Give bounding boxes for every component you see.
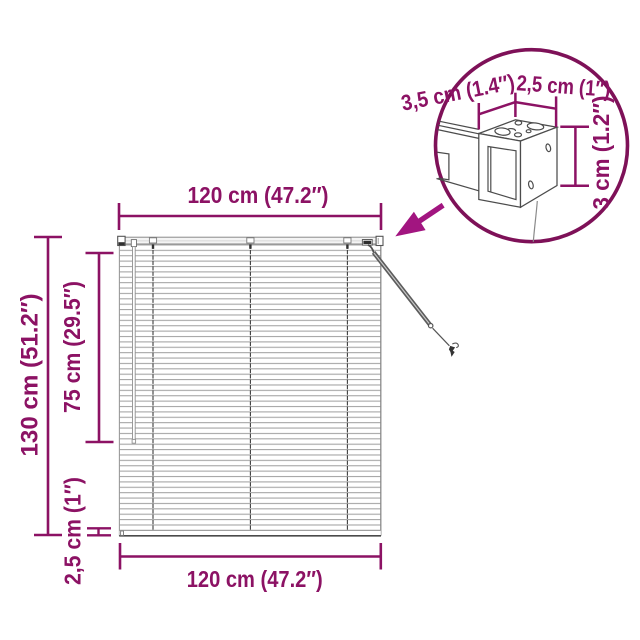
svg-text:130 cm (51.2″): 130 cm (51.2″) [17, 294, 44, 457]
svg-text:75 cm (29.5″): 75 cm (29.5″) [59, 281, 85, 413]
svg-text:3 cm (1.2″): 3 cm (1.2″) [588, 96, 614, 210]
svg-text:120 cm (47.2″): 120 cm (47.2″) [187, 566, 323, 592]
svg-text:120 cm (47.2″): 120 cm (47.2″) [188, 182, 329, 208]
svg-text:2,5 cm (1″): 2,5 cm (1″) [60, 477, 86, 585]
